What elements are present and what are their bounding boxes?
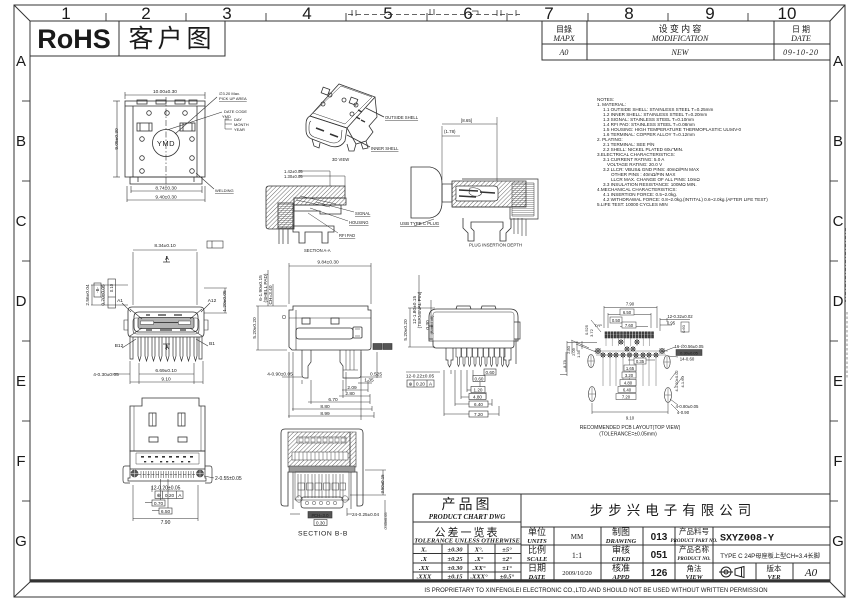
svg-text:INNER SHELL: INNER SHELL	[371, 146, 399, 151]
svg-text:±0.15: ±0.15	[448, 574, 464, 581]
svg-text:G: G	[15, 533, 27, 550]
svg-text:目錄: 目錄	[556, 24, 572, 34]
svg-text:F: F	[833, 453, 842, 470]
svg-text:D: D	[833, 293, 844, 310]
svg-text:SIGNAL: SIGNAL	[355, 211, 371, 216]
svg-text:2.80: 2.80	[345, 391, 355, 397]
svg-text:0.525: 0.525	[370, 372, 382, 378]
svg-text:4-0.80±0.05: 4-0.80±0.05	[676, 404, 700, 409]
svg-text:5.20±0.20: 5.20±0.20	[252, 317, 258, 339]
svg-text:0.60: 0.60	[475, 377, 484, 382]
svg-text:⊕: ⊕	[409, 382, 413, 387]
svg-text:.XX: .XX	[419, 565, 430, 572]
svg-text:1.35: 1.35	[364, 378, 374, 384]
svg-text:8: 8	[624, 4, 633, 23]
svg-text:.XX°: .XX°	[473, 565, 486, 572]
svg-text:#CH=3.0: #CH=3.0	[311, 513, 329, 518]
svg-text:4-0.30±0.05: 4-0.30±0.05	[93, 372, 119, 378]
svg-text:4.80: 4.80	[624, 380, 633, 385]
svg-text:产品料号: 产品料号	[679, 526, 709, 536]
svg-text:±0.30: ±0.30	[448, 547, 464, 554]
svg-text:UNITS: UNITS	[527, 538, 547, 545]
svg-text:0.70±0.05: 0.70±0.05	[101, 284, 107, 306]
svg-text:3D VIEW: 3D VIEW	[332, 157, 349, 162]
svg-text:C: C	[16, 213, 27, 230]
svg-text:⊕: ⊕	[157, 493, 161, 499]
svg-text:16-∅0.56±0.05: 16-∅0.56±0.05	[674, 344, 704, 349]
svg-text:A0: A0	[804, 567, 818, 579]
svg-text:A: A	[165, 256, 169, 262]
svg-text:9.10: 9.10	[626, 416, 635, 421]
svg-text:6.40: 6.40	[623, 387, 632, 392]
svg-text:A: A	[165, 345, 169, 351]
svg-text:0.10: 0.10	[109, 283, 114, 292]
svg-text:9.10: 9.10	[161, 377, 171, 383]
svg-text:14-0.60: 14-0.60	[680, 357, 695, 362]
svg-text:B1: B1	[209, 341, 215, 347]
svg-text:(Board off): (Board off)	[429, 315, 434, 334]
svg-text:G: G	[832, 533, 844, 550]
svg-text:MAPX: MAPX	[552, 34, 575, 43]
svg-text:4-1.20±0.02: 4-1.20±0.02	[674, 370, 679, 392]
svg-text:0.60: 0.60	[486, 370, 495, 375]
svg-text:核准: 核准	[612, 562, 630, 573]
svg-text:VER: VER	[767, 574, 781, 581]
svg-text:F: F	[16, 453, 25, 470]
svg-text:10.00±0.30: 10.00±0.30	[153, 89, 177, 95]
svg-text:WELDING: WELDING	[215, 188, 234, 193]
svg-text:013: 013	[651, 532, 668, 543]
svg-text:C: C	[833, 213, 844, 230]
svg-text:RECOMMENDED PCB LAYOUT(TOP: RECOMMENDED PCB LAYOUT(TOP VIEW)	[580, 425, 681, 431]
svg-text:2: 2	[141, 4, 150, 23]
svg-text:.XXX°: .XXX°	[470, 574, 488, 581]
svg-text:5: 5	[383, 4, 392, 23]
svg-text:8.80: 8.80	[320, 404, 330, 410]
svg-text:4-0.90: 4-0.90	[677, 410, 690, 415]
svg-text:9.05±0.30: 9.05±0.30	[114, 128, 120, 150]
svg-text:(TERMINAL PIN): (TERMINAL PIN)	[417, 291, 423, 328]
svg-text:(1.78): (1.78)	[444, 129, 456, 134]
svg-text:6.50: 6.50	[161, 509, 171, 515]
svg-text:7.60: 7.60	[625, 323, 634, 328]
svg-text:1.65: 1.65	[626, 366, 635, 371]
svg-text:产品图: 产品图	[442, 497, 493, 513]
svg-text:RFI PAD: RFI PAD	[339, 233, 355, 238]
svg-text:12-0.32±0.02: 12-0.32±0.02	[667, 314, 693, 319]
svg-text:客户图: 客户图	[128, 25, 215, 53]
svg-text:YEAR: YEAR	[234, 127, 245, 132]
svg-text:126: 126	[651, 568, 668, 579]
svg-text:YMD: YMD	[222, 114, 231, 119]
svg-text:PICK UP AREA: PICK UP AREA	[219, 96, 247, 101]
svg-text:A12: A12	[208, 298, 217, 304]
svg-text:9.40±0.30: 9.40±0.30	[155, 195, 177, 201]
svg-text:2.56±0.04: 2.56±0.04	[85, 284, 91, 306]
svg-text:USB TYPE C PLUG: USB TYPE C PLUG	[400, 221, 440, 226]
svg-text:±2°: ±2°	[502, 556, 512, 563]
svg-text:OUTSIDE SHELL: OUTSIDE SHELL	[385, 115, 419, 120]
svg-text:±1°: ±1°	[502, 565, 512, 572]
svg-text:日期: 日期	[528, 563, 546, 573]
svg-text:SECTION A-A: SECTION A-A	[304, 248, 331, 253]
svg-text:0.35: 0.35	[636, 359, 645, 364]
svg-text:E: E	[833, 373, 843, 390]
svg-text:VIEW: VIEW	[686, 574, 704, 581]
svg-text:2009/10/20: 2009/10/20	[562, 570, 592, 577]
svg-text:SXYZ008-Y: SXYZ008-Y	[720, 534, 774, 545]
svg-text:4.80: 4.80	[473, 395, 482, 400]
svg-text:SECTION B-B: SECTION B-B	[298, 531, 348, 538]
svg-text:8.34±0.10: 8.34±0.10	[154, 243, 176, 249]
svg-text:B: B	[833, 133, 843, 150]
svg-text:设 变 内 容: 设 变 内 容	[659, 23, 702, 34]
svg-text:8.79: 8.79	[562, 359, 567, 368]
svg-text:0.95: 0.95	[667, 321, 676, 326]
svg-text:4-0.90±0.05: 4-0.90±0.05	[267, 372, 293, 378]
svg-text:DATE: DATE	[528, 574, 547, 581]
svg-text:MM: MM	[571, 533, 584, 541]
svg-text:0.60: 0.60	[681, 324, 686, 333]
svg-text:1:1: 1:1	[572, 551, 582, 560]
svg-text:±0.30: ±0.30	[448, 565, 464, 572]
svg-text:6.50: 6.50	[623, 310, 632, 315]
svg-text:E: E	[16, 373, 26, 390]
svg-text:±0.5°: ±0.5°	[500, 574, 515, 581]
svg-text:5.20±0.20: 5.20±0.20	[403, 319, 409, 341]
svg-text:CH=3.40: CH=3.40	[268, 285, 274, 304]
svg-text:4-1.60: 4-1.60	[680, 376, 685, 388]
svg-text:0.20: 0.20	[165, 493, 175, 499]
svg-text:IS PROPRIETARY TO XINFENGLE: IS PROPRIETARY TO XINFENGLEI ELECTRONIC …	[424, 588, 767, 594]
svg-text:2.09: 2.09	[347, 385, 357, 391]
svg-text:DATE: DATE	[790, 34, 811, 43]
svg-text:A0: A0	[559, 48, 569, 57]
svg-text:B12: B12	[115, 343, 124, 349]
svg-text:3: 3	[222, 4, 231, 23]
svg-text:RoHS: RoHS	[37, 24, 111, 54]
svg-text:审核: 审核	[612, 544, 630, 555]
svg-text:±5°: ±5°	[502, 547, 512, 554]
svg-text:版本: 版本	[767, 563, 782, 573]
svg-text:4: 4	[302, 4, 311, 23]
svg-text:7.20: 7.20	[622, 394, 631, 399]
svg-text:09-10-20: 09-10-20	[783, 48, 819, 57]
svg-text:CHKD: CHKD	[612, 556, 631, 563]
svg-text:24-0.25±0.04: 24-0.25±0.04	[352, 512, 379, 517]
svg-text:制图: 制图	[612, 526, 630, 537]
svg-text:0.50: 0.50	[612, 318, 621, 323]
svg-text:.X: .X	[421, 556, 428, 563]
svg-text:±0.25: ±0.25	[448, 556, 464, 563]
svg-text:A1: A1	[117, 298, 123, 304]
svg-text:SCALE: SCALE	[527, 556, 548, 563]
svg-text:9.84±0.30: 9.84±0.30	[317, 260, 339, 266]
svg-text:TOLERANCE UNLESS OTHERWISE: TOLERANCE UNLESS OTHERWISE	[414, 538, 520, 545]
svg-text:角法: 角法	[687, 563, 702, 573]
svg-text:(TOLERANCE=±0.05mm): (TOLERANCE=±0.05mm)	[599, 432, 657, 438]
svg-text:3.20: 3.20	[625, 373, 634, 378]
svg-text:.XXX: .XXX	[417, 574, 432, 581]
svg-text:9: 9	[705, 4, 714, 23]
svg-text:PLUG INSERTION DEPTH: PLUG INSERTION DEPTH	[469, 243, 522, 248]
svg-text:NEW: NEW	[671, 48, 690, 57]
svg-text:步步兴电子有限公司: 步步兴电子有限公司	[590, 503, 757, 518]
svg-text:1.20: 1.20	[474, 388, 483, 393]
svg-text:-B-: -B-	[95, 287, 100, 293]
svg-text:051: 051	[651, 550, 668, 561]
svg-text:6.69±0.10: 6.69±0.10	[155, 368, 177, 374]
svg-text:0.30: 0.30	[316, 521, 325, 526]
svg-text:2-0.55±0.05: 2-0.55±0.05	[215, 476, 242, 482]
svg-text:X.: X.	[420, 547, 427, 554]
svg-text:单位: 单位	[528, 526, 546, 537]
svg-text:A: A	[16, 53, 26, 70]
svg-text:PRODUCT PART NO.: PRODUCT PART NO.	[671, 539, 718, 544]
svg-text:.X°: .X°	[475, 556, 484, 563]
svg-text:3.72: 3.72	[589, 328, 594, 337]
svg-text:6.40: 6.40	[474, 402, 483, 407]
svg-text:产品名称: 产品名称	[679, 544, 709, 554]
svg-text:HOUSING: HOUSING	[349, 220, 369, 225]
svg-text:7.20: 7.20	[474, 412, 483, 417]
svg-text:PRODUCT NO.: PRODUCT NO.	[677, 557, 710, 562]
svg-text:DRAWING: DRAWING	[605, 538, 637, 545]
svg-text:6.70: 6.70	[328, 397, 338, 403]
svg-text:X°.: X°.	[474, 547, 484, 554]
svg-text:7.90: 7.90	[161, 520, 171, 526]
svg-text:0.30±0.05: 0.30±0.05	[680, 351, 699, 356]
svg-text:0.70: 0.70	[154, 501, 164, 507]
svg-text:D: D	[16, 293, 27, 310]
svg-text:[8.65]: [8.65]	[461, 118, 472, 123]
svg-text:12-0.22±0.05: 12-0.22±0.05	[406, 374, 435, 380]
svg-text:8.99: 8.99	[320, 411, 330, 417]
svg-text:PRODUCT CHART DWG: PRODUCT CHART DWG	[429, 513, 506, 521]
svg-text:TYP: TYP	[594, 323, 602, 328]
svg-text:MODIFICATION: MODIFICATION	[651, 34, 709, 43]
svg-text:1: 1	[61, 4, 70, 23]
svg-text:10: 10	[778, 4, 797, 23]
svg-text:日 期: 日 期	[792, 25, 810, 34]
svg-text:A: A	[833, 53, 843, 70]
svg-text:0.45±0.05: 0.45±0.05	[384, 513, 388, 530]
svg-text:5.LIFE TEST: 10000 CYCLES: 5.LIFE TEST: 10000 CYCLES MIN	[597, 202, 668, 207]
svg-text:6: 6	[463, 4, 472, 23]
svg-text:3.50±0.15: 3.50±0.15	[380, 474, 385, 494]
svg-text:B: B	[16, 133, 26, 150]
svg-text:TYPE C 24P母座板上型CH=3.4长脚: TYPE C 24P母座板上型CH=3.4长脚	[720, 552, 820, 560]
svg-text:1.20±0.05: 1.20±0.05	[222, 290, 228, 312]
svg-text:12-0.20±0.05: 12-0.20±0.05	[151, 486, 181, 492]
svg-text:0.20: 0.20	[416, 382, 425, 387]
svg-text:1.35: 1.35	[576, 349, 581, 358]
svg-text:YMD: YMD	[157, 139, 175, 148]
svg-text:1.30±0.05: 1.30±0.05	[284, 174, 303, 179]
svg-text:APPD: APPD	[612, 574, 630, 581]
svg-text:8.74±0.30: 8.74±0.30	[155, 186, 177, 192]
svg-text:7.90: 7.90	[626, 302, 635, 307]
svg-text:比例: 比例	[528, 544, 546, 555]
svg-text:7: 7	[544, 4, 553, 23]
